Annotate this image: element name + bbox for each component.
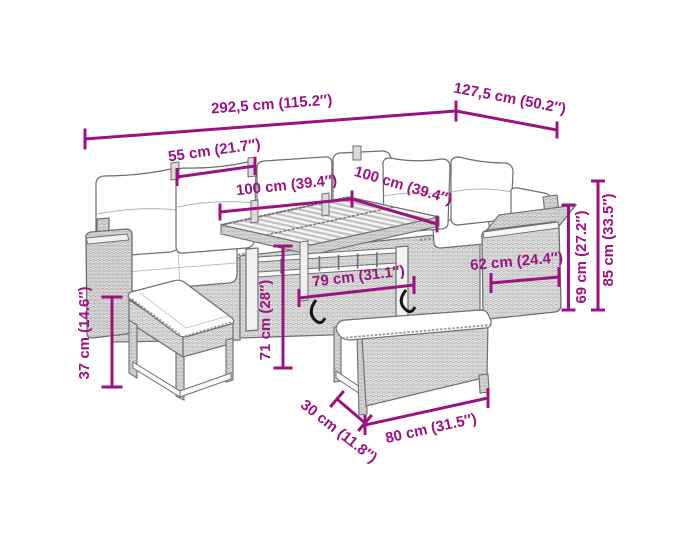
svg-text:292,5 cm (115.2″): 292,5 cm (115.2″)	[210, 91, 332, 117]
svg-text:69 cm (27.2″): 69 cm (27.2″)	[573, 210, 590, 303]
svg-text:127,5 cm (50.2″): 127,5 cm (50.2″)	[452, 80, 567, 118]
svg-text:55 cm (21.7″): 55 cm (21.7″)	[167, 136, 262, 166]
svg-text:85 cm (33.5″): 85 cm (33.5″)	[600, 193, 617, 286]
svg-text:71 cm (28″): 71 cm (28″)	[257, 280, 274, 361]
svg-text:80 cm (31.5″): 80 cm (31.5″)	[384, 410, 479, 447]
svg-text:37 cm (14.6″): 37 cm (14.6″)	[76, 286, 93, 379]
svg-text:30 cm (11.8″): 30 cm (11.8″)	[297, 396, 380, 466]
